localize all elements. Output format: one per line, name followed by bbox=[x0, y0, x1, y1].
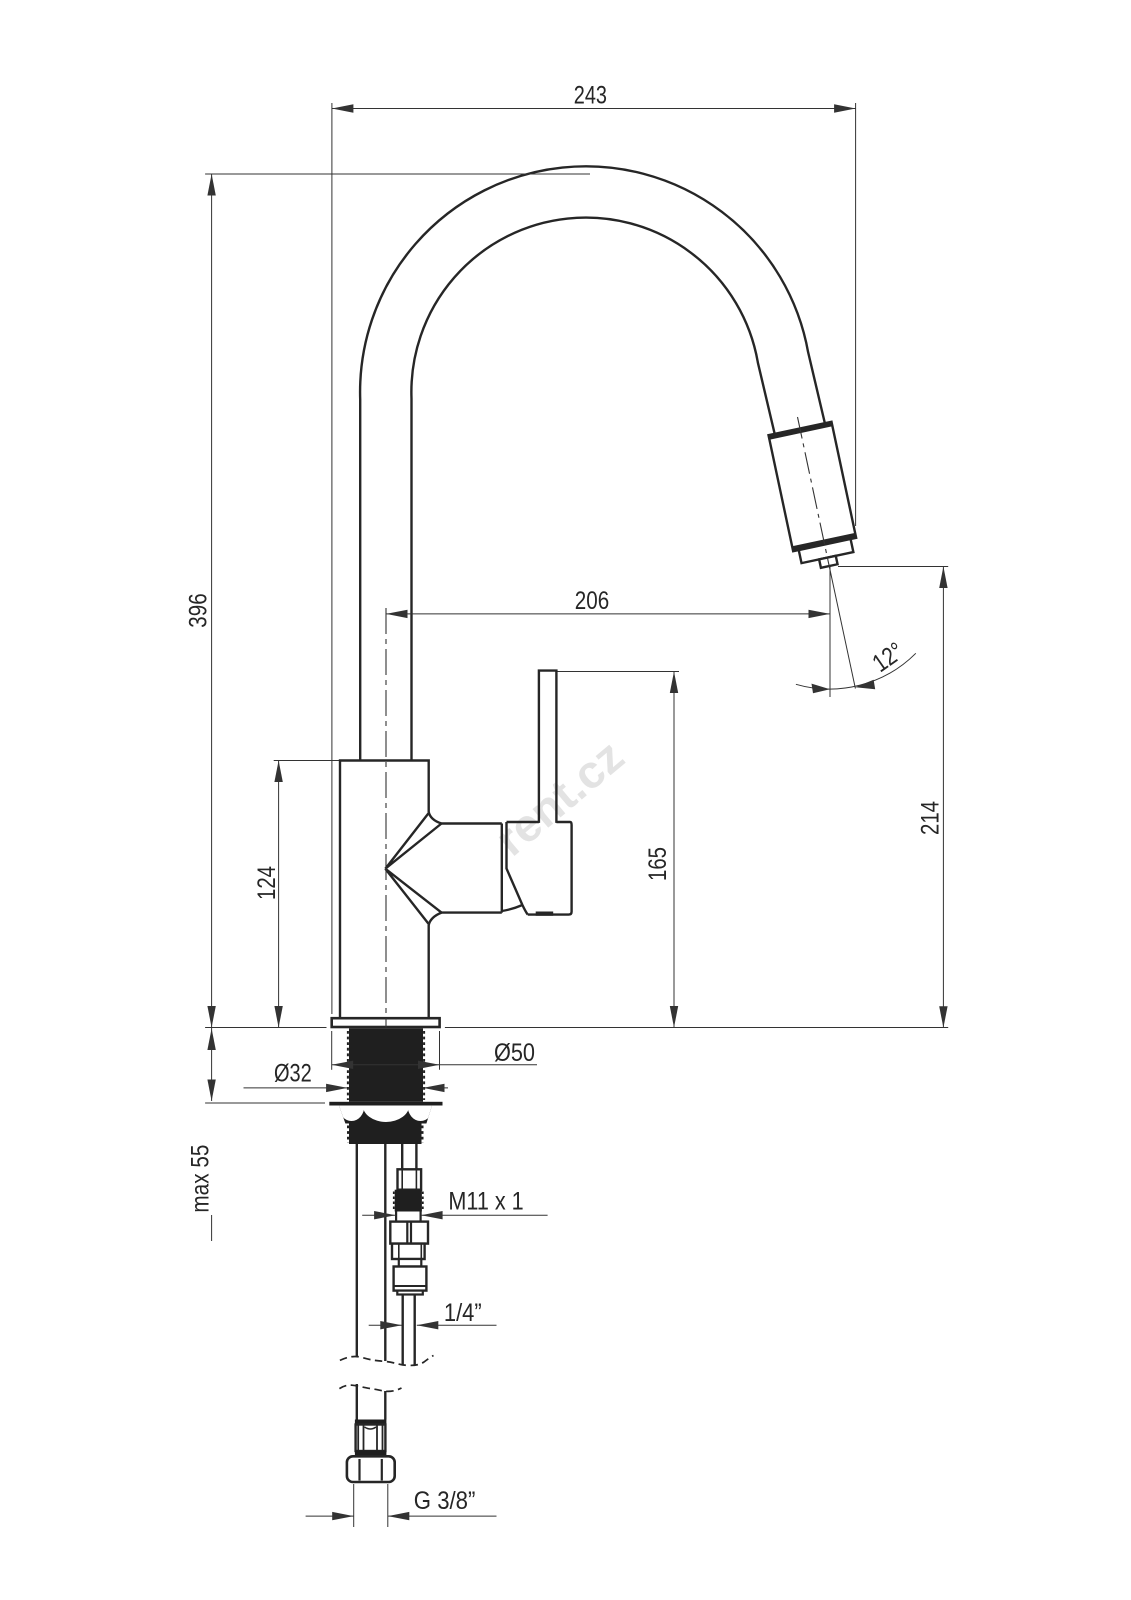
svg-text:396: 396 bbox=[185, 593, 213, 627]
svg-text:206: 206 bbox=[575, 587, 609, 615]
svg-text:max 55: max 55 bbox=[187, 1145, 215, 1213]
svg-text:Ø32: Ø32 bbox=[274, 1060, 312, 1088]
svg-text:214: 214 bbox=[916, 801, 944, 835]
svg-text:Ø50: Ø50 bbox=[494, 1039, 535, 1067]
svg-text:M11 x 1: M11 x 1 bbox=[448, 1187, 523, 1215]
svg-text:1/4”: 1/4” bbox=[444, 1299, 482, 1327]
svg-text:243: 243 bbox=[574, 81, 607, 109]
svg-text:124: 124 bbox=[253, 866, 281, 900]
svg-text:G 3/8”: G 3/8” bbox=[414, 1487, 476, 1515]
svg-text:165: 165 bbox=[644, 847, 672, 881]
